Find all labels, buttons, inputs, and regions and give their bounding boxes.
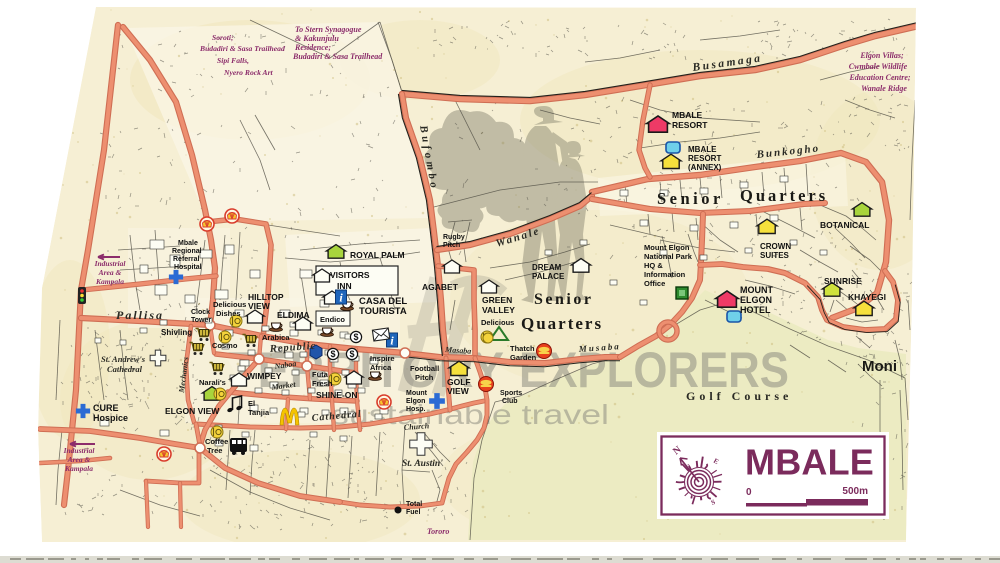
svg-text:Sipi Falls,: Sipi Falls, xyxy=(217,56,249,65)
svg-text:BOTANICAL: BOTANICAL xyxy=(820,220,869,230)
svg-text:Elgon Villas;: Elgon Villas; xyxy=(859,51,904,60)
svg-text:CROWN: CROWN xyxy=(760,242,791,251)
svg-text:Narali's: Narali's xyxy=(199,378,226,387)
svg-text:ELGON VIEW: ELGON VIEW xyxy=(165,406,220,416)
svg-text:RESORT: RESORT xyxy=(688,154,721,163)
svg-text:Futa: Futa xyxy=(312,370,329,379)
svg-text:Wanale Ridge: Wanale Ridge xyxy=(861,84,907,93)
svg-text:Thatch: Thatch xyxy=(510,344,535,353)
svg-text:Budadiri & Sasa Trailhead: Budadiri & Sasa Trailhead xyxy=(199,44,285,53)
svg-text:MOUNT: MOUNT xyxy=(740,285,773,295)
svg-text:SUNRISE: SUNRISE xyxy=(824,276,862,286)
svg-text:El: El xyxy=(248,399,255,408)
svg-text:AGABET: AGABET xyxy=(422,282,459,292)
svg-text:Area &: Area & xyxy=(67,455,91,464)
svg-text:Soroti;: Soroti; xyxy=(212,33,234,42)
svg-text:Hospice: Hospice xyxy=(93,413,128,423)
svg-text:Moni: Moni xyxy=(862,358,897,375)
svg-text:Area &: Area & xyxy=(98,268,122,277)
svg-text:(ANNEX): (ANNEX) xyxy=(688,163,722,172)
svg-text:Residence;: Residence; xyxy=(294,43,331,52)
svg-text:Industrial: Industrial xyxy=(63,446,96,455)
svg-text:Hospital: Hospital xyxy=(174,264,202,271)
svg-text:Kampala: Kampala xyxy=(95,277,124,286)
svg-text:WIMPEY: WIMPEY xyxy=(247,371,282,381)
svg-text:ROYAL PALM: ROYAL PALM xyxy=(350,250,405,260)
svg-text:Inspire: Inspire xyxy=(370,354,395,363)
svg-text:500m: 500m xyxy=(842,486,868,497)
svg-text:Quarters: Quarters xyxy=(521,314,603,333)
svg-text:CURE: CURE xyxy=(93,403,119,413)
svg-text:$: $ xyxy=(353,332,358,342)
svg-text:Clock: Clock xyxy=(191,309,210,316)
svg-text:Tororo: Tororo xyxy=(427,527,449,536)
svg-text:VISITORS: VISITORS xyxy=(330,270,370,280)
svg-text:MBALE: MBALE xyxy=(745,442,874,483)
svg-text:SHINE-ON: SHINE-ON xyxy=(316,390,358,400)
svg-text:Cosmo: Cosmo xyxy=(212,341,238,350)
svg-text:Golf Course: Golf Course xyxy=(686,389,792,403)
svg-text:Coffee: Coffee xyxy=(205,437,228,446)
svg-text:Regional: Regional xyxy=(172,248,202,255)
svg-text:0: 0 xyxy=(746,487,752,498)
svg-text:Office: Office xyxy=(644,279,665,288)
svg-text:Africa: Africa xyxy=(370,363,392,372)
svg-text:Sports: Sports xyxy=(500,390,522,397)
svg-text:Club: Club xyxy=(502,398,518,405)
svg-text:Quarters: Quarters xyxy=(740,186,828,205)
svg-text:To Stern Synagogue: To Stern Synagogue xyxy=(295,25,362,34)
svg-text:Arabica: Arabica xyxy=(262,333,290,342)
svg-text:Education Centre;: Education Centre; xyxy=(848,73,910,82)
svg-text:Endico: Endico xyxy=(320,315,345,324)
svg-text:& Kakunjulu: & Kakunjulu xyxy=(295,34,339,43)
svg-text:Church: Church xyxy=(404,421,430,432)
svg-text:Total: Total xyxy=(406,501,422,508)
svg-text:Pitch: Pitch xyxy=(443,242,460,249)
svg-text:Fuel: Fuel xyxy=(406,509,420,516)
svg-text:HQ &: HQ & xyxy=(644,261,663,270)
svg-text:Industrial: Industrial xyxy=(94,259,127,268)
svg-text:Masaba: Masaba xyxy=(444,345,472,356)
svg-text:Delicious: Delicious xyxy=(481,318,514,327)
svg-text:HOTEL: HOTEL xyxy=(740,305,771,315)
svg-text:RESORT: RESORT xyxy=(672,120,708,130)
svg-text:National Park: National Park xyxy=(644,252,693,261)
svg-text:$: $ xyxy=(349,349,354,359)
svg-text:Garden: Garden xyxy=(510,353,537,362)
svg-text:Delicious: Delicious xyxy=(213,300,246,309)
svg-text:VIEW: VIEW xyxy=(447,386,470,396)
svg-text:Senior: Senior xyxy=(534,291,593,308)
svg-text:VALLEY: VALLEY xyxy=(482,305,515,315)
svg-text:Information: Information xyxy=(644,270,686,279)
svg-text:Senior: Senior xyxy=(657,189,724,208)
svg-text:Cwmbale Wildlife: Cwmbale Wildlife xyxy=(849,62,908,71)
svg-text:Fresh: Fresh xyxy=(312,379,333,388)
svg-text:Mbale: Mbale xyxy=(178,240,198,247)
svg-text:Cathedral: Cathedral xyxy=(107,364,143,374)
svg-text:$: $ xyxy=(330,349,335,359)
svg-text:Budadiri & Sasa Trailhead: Budadiri & Sasa Trailhead xyxy=(292,52,383,61)
svg-text:Hosp.: Hosp. xyxy=(406,406,426,413)
svg-text:GREEN: GREEN xyxy=(482,295,512,305)
svg-text:Tree: Tree xyxy=(207,446,222,455)
svg-text:ELDIMA: ELDIMA xyxy=(277,310,310,320)
svg-text:Pallisa: Pallisa xyxy=(116,308,164,322)
svg-text:Mount Elgon: Mount Elgon xyxy=(644,243,690,252)
svg-text:Referral: Referral xyxy=(173,256,200,263)
svg-text:VIEW: VIEW xyxy=(248,301,271,311)
svg-text:MBALE: MBALE xyxy=(672,110,703,120)
svg-text:Tower: Tower xyxy=(191,317,211,324)
svg-text:St. Andrew's: St. Andrew's xyxy=(101,354,146,364)
svg-text:Pitch: Pitch xyxy=(415,373,434,382)
svg-text:Elgon: Elgon xyxy=(406,398,425,405)
svg-text:Shivling: Shivling xyxy=(161,328,192,337)
svg-text:ELGON: ELGON xyxy=(740,295,772,305)
svg-text:Tanjia: Tanjia xyxy=(248,408,270,417)
svg-text:KHAYEGI: KHAYEGI xyxy=(848,292,886,302)
svg-text:Rugby: Rugby xyxy=(443,234,465,241)
svg-text:TOURISTA: TOURISTA xyxy=(359,306,407,317)
svg-text:SUITES: SUITES xyxy=(760,251,790,260)
svg-text:Nyero Rock Art: Nyero Rock Art xyxy=(223,68,274,77)
svg-text:Football: Football xyxy=(410,364,439,373)
svg-text:Dishes: Dishes xyxy=(216,309,241,318)
svg-text:Kampala: Kampala xyxy=(64,464,93,473)
svg-text:St. Austin': St. Austin' xyxy=(402,459,443,469)
svg-text:MBALE: MBALE xyxy=(688,145,717,154)
svg-text:Mount: Mount xyxy=(406,390,428,397)
svg-text:PALACE: PALACE xyxy=(532,272,565,281)
svg-text:DREAM: DREAM xyxy=(532,263,562,272)
svg-text:INN: INN xyxy=(337,281,352,291)
